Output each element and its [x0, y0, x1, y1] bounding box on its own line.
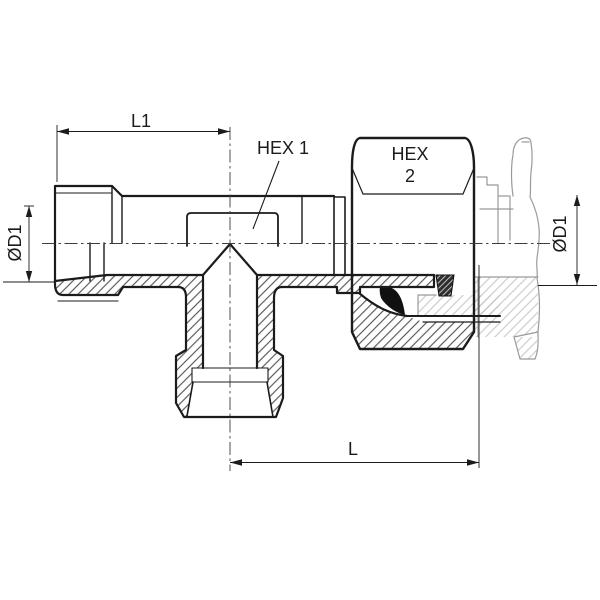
l1-arrow-left [57, 128, 69, 135]
phantom-stud-steps [477, 177, 513, 243]
hex1-label: HEX 1 [257, 138, 309, 158]
l-arrow-left [230, 459, 242, 466]
drawing-canvas: L1 HEX 1 HEX 2 ØD1 ØD1 L [0, 0, 600, 600]
od1-right-arrow-up [574, 195, 580, 206]
dimension-l1 [57, 125, 230, 182]
collar-outline [334, 197, 345, 275]
l-arrow-right [467, 459, 479, 466]
body-left-section [55, 275, 203, 417]
hex2-label-line2: 2 [405, 166, 415, 186]
od1-left-arrow-up [26, 206, 32, 217]
hex1-outline [187, 213, 278, 246]
od1-left-arrow-down [26, 271, 32, 282]
phantom-nose-section [418, 295, 500, 316]
cutting-ring [436, 275, 454, 296]
fitting-drawing: L1 HEX 1 HEX 2 ØD1 ØD1 L [0, 0, 600, 600]
hex2-label-line1: HEX [391, 144, 428, 164]
stud-end-faces [90, 186, 302, 281]
od1-right-label: ØD1 [550, 215, 570, 252]
od1-left-label: ØD1 [5, 224, 25, 261]
fitting-body-outline [55, 186, 434, 417]
l1-arrow-right [218, 128, 230, 135]
l-label: L [348, 439, 358, 459]
l1-label: L1 [131, 111, 151, 131]
od1-right-arrow-down [574, 274, 580, 285]
